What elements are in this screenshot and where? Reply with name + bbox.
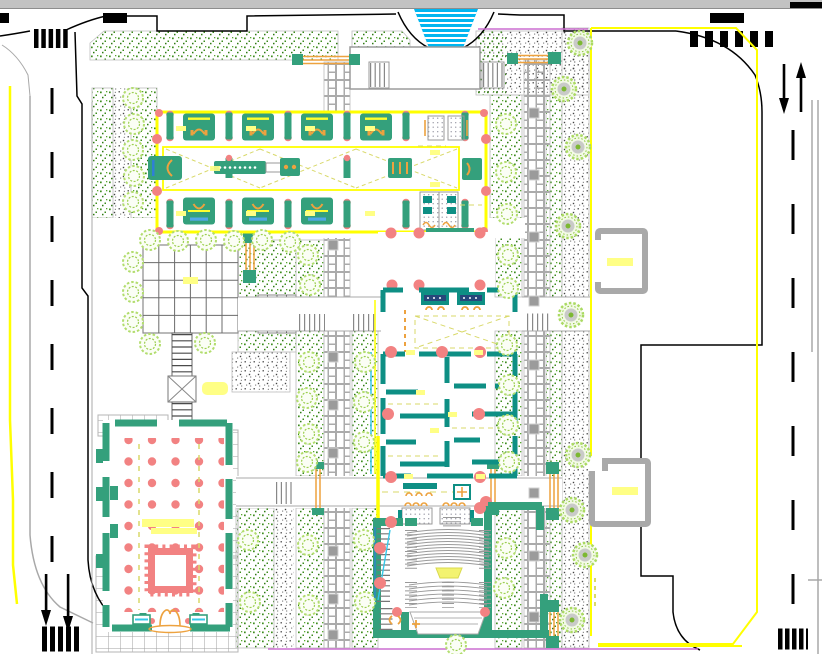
southwest-hall (96, 420, 233, 633)
north-building (148, 109, 491, 235)
stage (410, 612, 486, 634)
yellow-bench (202, 382, 228, 395)
kiosk (593, 231, 645, 291)
site-plan-canvas: Architectural campus site plan (CAD draw… (0, 0, 822, 654)
kiosk (588, 456, 648, 524)
grid-plaza (143, 245, 238, 333)
podium (436, 568, 462, 578)
